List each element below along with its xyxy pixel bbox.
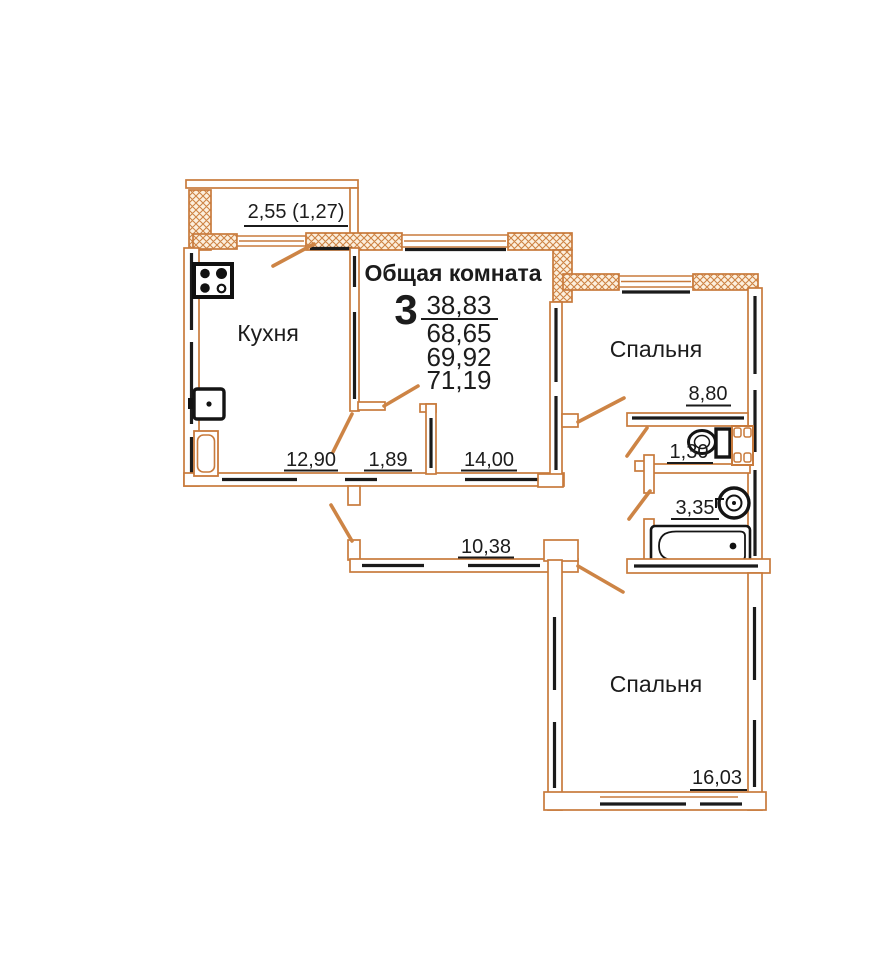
bedroom-top-label: Спальня [610,336,702,362]
room-count: 3 [394,286,417,333]
kitchen-label: Кухня [237,320,299,346]
closet-dimension: 1,89 [369,449,408,471]
wc-dimension: 1,30 [670,441,709,463]
balcony-door-swing [273,244,314,266]
wc-door-swing [627,428,647,456]
common-room-dimension: 14,00 [464,449,514,471]
stove-icon [194,264,232,297]
living-area: 38,83 [426,290,491,320]
floor-plan-page: 2,55 (1,27) [0,0,895,960]
bedroom-top-door-swing [578,398,624,422]
bedroom-bottom-dimension: 16,03 [692,767,742,789]
bedroom-bottom-door-swing [578,566,623,592]
common-room-label: Общая комната [364,260,541,286]
bedroom-bottom-label: Спальня [610,671,702,697]
wc-room: 1,30 [627,426,753,493]
bathroom-dimension: 3,35 [676,497,715,519]
bedroom-top-dimension: 8,80 [689,383,728,405]
area-with-balcony: 71,19 [426,365,491,395]
bathroom-room: 3,35 [629,488,750,566]
kitchen-dimension: 12,90 [286,449,336,471]
kitchen-door-swing [333,414,352,452]
washbasin-icon [716,488,749,518]
closet-door-swing [384,386,418,406]
bedroom-bottom: Спальня 16,03 [544,560,766,810]
bathroom-door-swing [629,491,650,519]
floor-plan: 2,55 (1,27) [0,0,895,960]
washing-machine-icon [732,426,753,465]
corridor-dimension: 10,38 [461,536,511,558]
balcony-dimension: 2,55 (1,27) [248,201,345,223]
kitchen-sink-icon [188,389,224,419]
entrance-door-swing [331,505,352,541]
kitchen-cabinet-icon [194,431,218,476]
closet: 1,89 [364,404,436,474]
balcony: 2,55 (1,27) [186,180,402,266]
